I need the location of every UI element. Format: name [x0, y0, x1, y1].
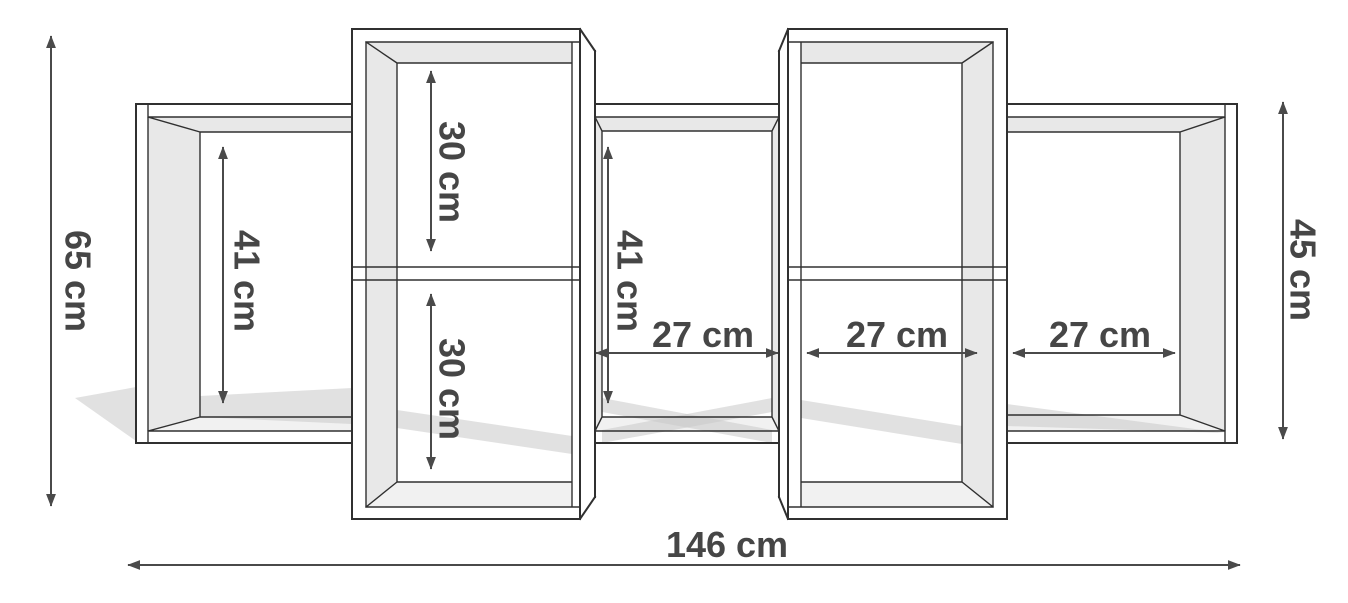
dim-label-overall-height-right: 45 cm [1283, 219, 1324, 321]
dim-label-center-compartment-height: 41 cm [610, 230, 651, 332]
dim-label-left-compartment-height: 41 cm [227, 230, 268, 332]
dim-label-center-compartment-width: 27 cm [652, 314, 754, 355]
dim-label-top-cell-height: 30 cm [432, 121, 473, 223]
dimension-annotations: 65 cm 41 cm 30 cm 30 cm 41 cm 45 cm 27 c… [51, 36, 1324, 565]
dim-label-right-compartment-width: 27 cm [1049, 314, 1151, 355]
dim-label-overall-width: 146 cm [666, 524, 788, 565]
dim-label-overall-height-left: 65 cm [58, 230, 99, 332]
panel-faces [148, 42, 1225, 507]
wall-shelf-dimension-diagram: 65 cm 41 cm 30 cm 30 cm 41 cm 45 cm 27 c… [0, 0, 1348, 603]
dim-label-bottom-cell-height: 30 cm [432, 338, 473, 440]
diagram-canvas: 65 cm 41 cm 30 cm 30 cm 41 cm 45 cm 27 c… [0, 0, 1348, 603]
dim-label-right-column-cell-width: 27 cm [846, 314, 948, 355]
